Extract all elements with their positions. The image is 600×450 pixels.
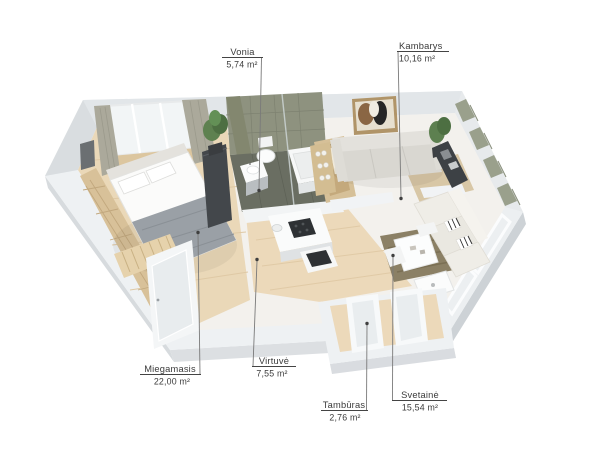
room-area: 5,74 m² xyxy=(226,60,257,70)
wall-art xyxy=(80,140,95,170)
floorplan-canvas: Vonia 5,74 m² Kambarys 10,16 m² Miegamas… xyxy=(0,0,600,450)
room-area: 15,54 m² xyxy=(402,403,438,413)
room-name: Virtuvė xyxy=(259,356,289,366)
room-area: 10,16 m² xyxy=(399,54,435,64)
leader-dot xyxy=(365,322,368,325)
kitchen-sink xyxy=(272,225,282,232)
room-name: Svetainė xyxy=(401,390,439,400)
leader-dot xyxy=(196,231,199,234)
room-name: Tambūras xyxy=(323,400,366,410)
room-area: 2,76 m² xyxy=(329,413,360,423)
leader-line xyxy=(367,325,368,410)
bedroom-door xyxy=(146,240,200,349)
room-name: Kambarys xyxy=(399,41,443,51)
room-area: 22,00 m² xyxy=(154,377,190,387)
room-name: Vonia xyxy=(230,47,255,57)
leader-dot xyxy=(255,258,258,261)
leader-dot xyxy=(257,189,260,192)
leader-dot xyxy=(399,197,402,200)
entrance-door-frame xyxy=(346,294,384,353)
glass-door-frame xyxy=(390,288,428,346)
room-area: 7,55 m² xyxy=(256,369,287,379)
leader-line xyxy=(393,257,394,400)
leader-dot xyxy=(391,254,394,257)
vestibule xyxy=(318,288,456,374)
painting xyxy=(352,96,398,135)
door-handle xyxy=(157,299,160,302)
room-name: Miegamasis xyxy=(144,364,196,374)
floorplan-render: Vonia 5,74 m² Kambarys 10,16 m² Miegamas… xyxy=(0,0,600,450)
